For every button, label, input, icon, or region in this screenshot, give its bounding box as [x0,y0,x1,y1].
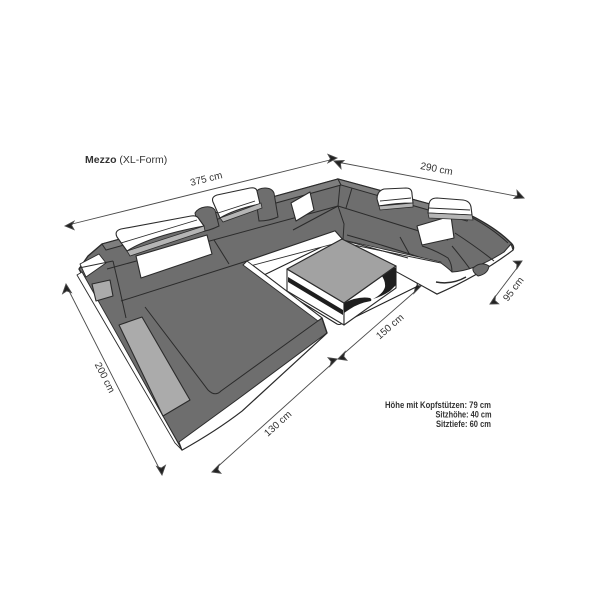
svg-text:Mezzo (XL-Form): Mezzo (XL-Form) [85,154,167,166]
svg-text:Sitztiefe: 60 cm: Sitztiefe: 60 cm [436,419,491,430]
